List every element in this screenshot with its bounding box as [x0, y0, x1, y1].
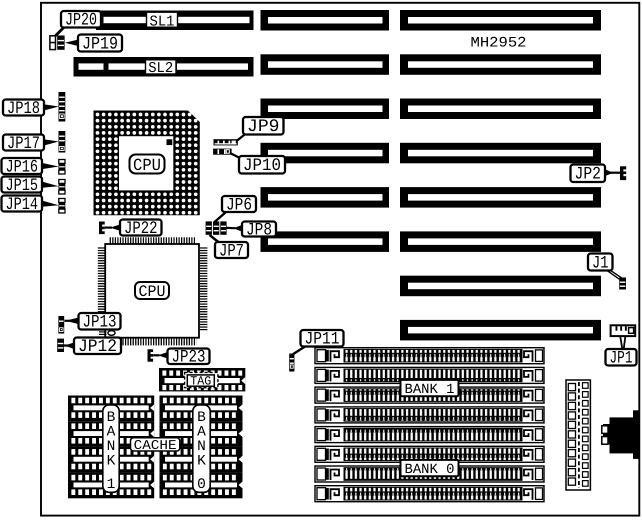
svg-text:SL1: SL1 — [150, 13, 175, 30]
svg-text:JP10: JP10 — [243, 156, 281, 176]
svg-text:JP8: JP8 — [246, 220, 272, 240]
svg-text:JP23: JP23 — [172, 348, 206, 368]
svg-text:BANK 0: BANK 0 — [405, 462, 455, 478]
svg-text:CPU: CPU — [139, 283, 166, 301]
svg-text:JP19: JP19 — [82, 34, 118, 54]
svg-text:0: 0 — [197, 477, 206, 493]
svg-text:JP18: JP18 — [7, 99, 40, 119]
svg-text:1: 1 — [107, 477, 116, 493]
svg-text:MH2952: MH2952 — [471, 36, 527, 52]
svg-text:JP7: JP7 — [219, 241, 244, 261]
svg-text:TAG: TAG — [190, 375, 211, 389]
svg-text:JP9: JP9 — [247, 117, 280, 137]
svg-text:JP14: JP14 — [6, 195, 39, 215]
svg-text:JP2: JP2 — [575, 165, 602, 185]
svg-text:JP22: JP22 — [124, 219, 158, 239]
svg-text:JP15: JP15 — [6, 176, 39, 196]
svg-text:JP13: JP13 — [83, 313, 117, 333]
svg-text:CPU: CPU — [133, 157, 161, 176]
svg-text:JP20: JP20 — [65, 11, 97, 31]
svg-text:JP6: JP6 — [226, 195, 252, 215]
svg-text:K: K — [107, 454, 116, 470]
svg-text:CACHE: CACHE — [134, 439, 177, 454]
svg-text:JP12: JP12 — [78, 337, 117, 357]
svg-text:JP1: JP1 — [610, 349, 633, 369]
svg-text:JP11: JP11 — [305, 330, 340, 350]
svg-text:BANK 1: BANK 1 — [405, 382, 455, 398]
svg-text:K: K — [197, 454, 206, 470]
svg-text:JP16: JP16 — [6, 157, 39, 177]
svg-text:J1: J1 — [592, 253, 609, 273]
svg-text:SL2: SL2 — [148, 60, 173, 77]
svg-text:JP17: JP17 — [7, 134, 40, 154]
